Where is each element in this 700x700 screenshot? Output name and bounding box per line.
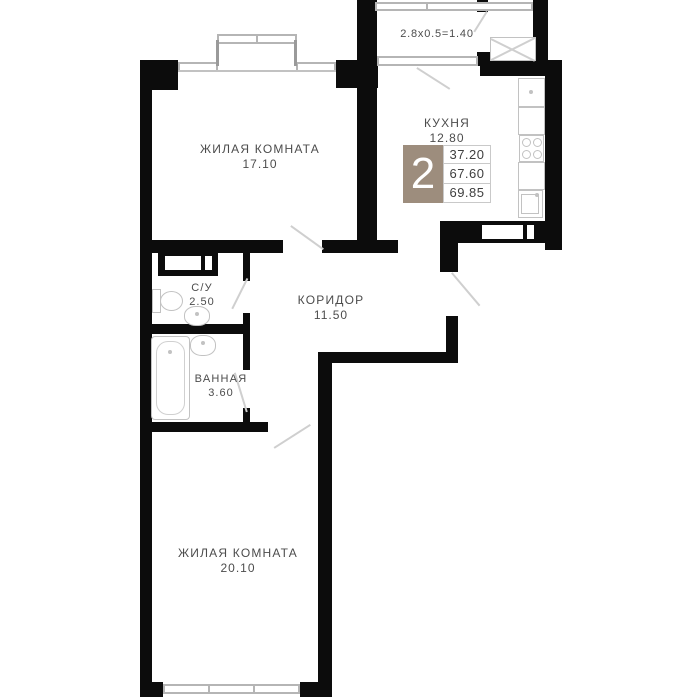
wc-basin-dot — [195, 312, 199, 316]
room-name: ВАННАЯ — [195, 372, 248, 386]
wall-livingroom-kitchen-divider — [357, 0, 377, 253]
kitchen-sink-basin — [521, 194, 539, 214]
wall-wc-right-top — [243, 253, 250, 281]
toilet-bowl — [160, 291, 183, 311]
bath-basin-dot — [201, 341, 205, 345]
balcony-dimension-text: 2.8x0.5=1.40 — [400, 27, 474, 42]
rooms-count-badge: 2 — [403, 145, 443, 203]
bath-basin — [190, 335, 216, 356]
kitchen-counter-2 — [518, 107, 545, 135]
window-post-balcony-kitchen — [477, 52, 490, 66]
stove-burner-3 — [522, 150, 531, 159]
wall-top-left-block — [140, 60, 178, 90]
vent-shaft-cell-1 — [165, 256, 201, 270]
room-name: КУХНЯ — [424, 116, 470, 131]
room-area: 12.80 — [424, 131, 470, 146]
bathtub-drain — [168, 350, 172, 354]
window-bay-top — [217, 34, 297, 44]
door-swing-livingroom2 — [274, 424, 311, 448]
label-corridor: КОРИДОР 11.50 — [298, 293, 365, 323]
entrance-door — [482, 225, 523, 239]
window-balcony-kitchen — [377, 56, 478, 66]
leader-balcony-label — [473, 11, 487, 32]
rooms-count: 2 — [411, 149, 435, 199]
wall-wc-right-bottom — [243, 313, 250, 334]
kitchen-sink-dot — [535, 193, 539, 197]
window-balcony-north — [375, 2, 533, 11]
kitchen-counter-dot — [529, 90, 533, 94]
area-row-living: 37.20 — [443, 145, 491, 164]
entrance-door-jamb — [527, 225, 534, 239]
label-kitchen: КУХНЯ 12.80 — [424, 116, 470, 146]
area-row-total: 69.85 — [443, 184, 491, 203]
wall-livingroom2-right — [318, 352, 332, 697]
label-living-2: ЖИЛАЯ КОМНАТА 20.10 — [178, 546, 298, 576]
room-name: ЖИЛАЯ КОМНАТА — [200, 142, 320, 157]
bay-wall-right — [294, 40, 297, 66]
leader-kitchen-window — [417, 67, 451, 89]
room-area: 2.50 — [189, 295, 214, 309]
label-balcony-dimension: 2.8x0.5=1.40 — [400, 27, 474, 42]
stove-burner-1 — [522, 138, 531, 147]
room-area: 20.10 — [178, 561, 298, 576]
bay-wall-left — [216, 40, 219, 66]
wall-entry-stub — [440, 243, 458, 272]
bay-sill-line — [178, 70, 336, 72]
window-livingroom2 — [163, 684, 300, 694]
stove-burner-4 — [533, 150, 542, 159]
wc-basin — [184, 306, 210, 326]
door-swing-wc — [231, 278, 248, 309]
room-area: 11.50 — [298, 308, 365, 323]
vent-shaft-cell-2 — [205, 256, 212, 270]
label-wc: С/У 2.50 — [189, 281, 214, 309]
stove-burner-2 — [533, 138, 542, 147]
room-name: ЖИЛАЯ КОМНАТА — [178, 546, 298, 561]
door-swing-livingroom1 — [291, 225, 324, 250]
wall-bottom-right-corner — [300, 682, 332, 697]
wall-corridor-bottom — [318, 352, 458, 363]
floor-plan: ЖИЛАЯ КОМНАТА 17.10 КУХНЯ 12.80 С/У 2.50… — [0, 0, 700, 700]
apartment-info-badge: 2 37.20 67.60 69.85 — [403, 145, 491, 203]
wall-bottom-left-corner — [140, 682, 163, 697]
label-bathroom: ВАННАЯ 3.60 — [195, 372, 248, 400]
room-area: 17.10 — [200, 157, 320, 172]
door-swing-entrance — [451, 272, 480, 306]
area-row-apartment: 67.60 — [443, 164, 491, 183]
room-name: КОРИДОР — [298, 293, 365, 308]
wall-bath-right-top — [243, 334, 250, 370]
wall-bath-bottom — [140, 422, 268, 432]
areas-table: 37.20 67.60 69.85 — [443, 145, 491, 203]
label-living-1: ЖИЛАЯ КОМНАТА 17.10 — [200, 142, 320, 172]
kitchen-counter-3 — [518, 162, 545, 190]
room-area: 3.60 — [195, 386, 248, 400]
room-name: С/У — [189, 281, 214, 295]
wall-corridor-top-right — [322, 240, 398, 253]
